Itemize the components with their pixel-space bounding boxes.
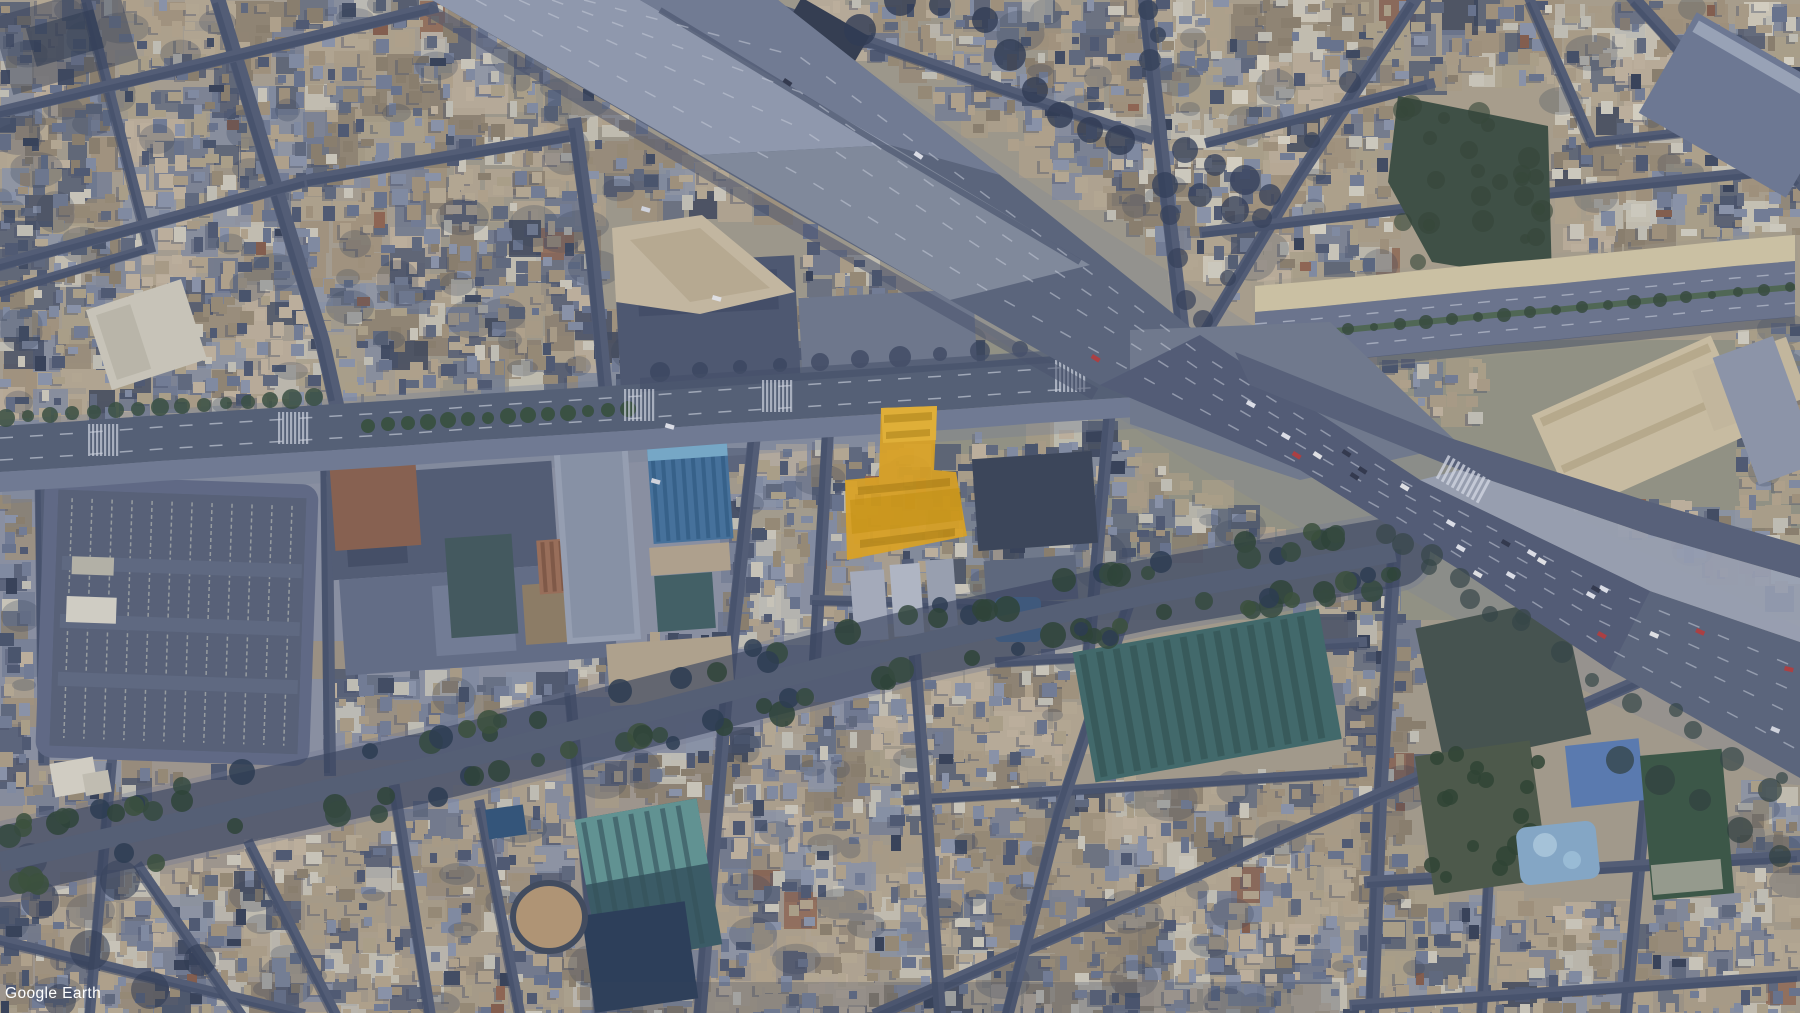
svg-text:Google Earth: Google Earth [5,985,101,1002]
